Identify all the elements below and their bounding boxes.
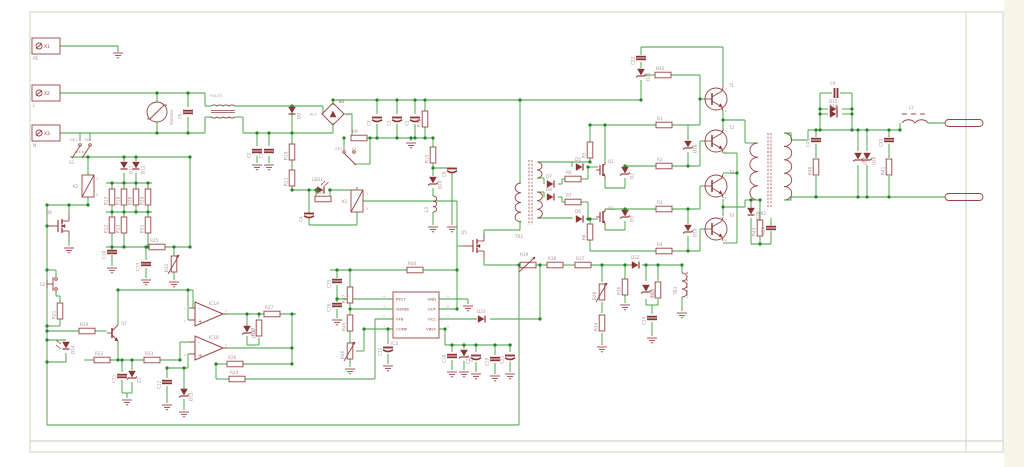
svg-text:R18: R18 (116, 196, 121, 205)
component-T4: CET4 (704, 213, 735, 243)
svg-text:R39: R39 (520, 252, 529, 257)
component-C10: C10 (102, 250, 118, 259)
svg-text:FOLTO: FOLTO (210, 93, 222, 98)
svg-text:OUT: OUT (428, 307, 437, 312)
svg-text:K2: K2 (73, 184, 79, 189)
svg-text:D18: D18 (693, 144, 698, 153)
svg-text:IC2: IC2 (391, 341, 398, 347)
svg-text:C15: C15 (327, 279, 332, 288)
component-R2: R2 (656, 157, 672, 169)
svg-text:R28: R28 (592, 291, 597, 300)
svg-text:1: 1 (366, 192, 368, 196)
svg-text:K1: K1 (352, 147, 357, 151)
component-X2: X2L (32, 85, 60, 108)
component-R22: R22 (94, 351, 110, 363)
svg-text:-: - (198, 340, 200, 346)
svg-text:6: 6 (447, 305, 449, 309)
svg-text:B1: B1 (339, 99, 345, 104)
component-R21: R21 (52, 303, 63, 319)
gnd-symbol (113, 53, 123, 58)
svg-text:R38: R38 (548, 256, 557, 261)
component-R12: R12 (104, 217, 115, 233)
svg-text:R8: R8 (582, 234, 587, 240)
svg-text:C21: C21 (500, 355, 505, 364)
svg-text:R23: R23 (145, 351, 154, 356)
component-R5: R5 (582, 142, 593, 158)
component-T2: CET2 (704, 125, 735, 155)
svg-text:C26: C26 (761, 226, 766, 235)
svg-text:U$6: U$6 (872, 156, 877, 165)
svg-text:C9: C9 (830, 81, 836, 86)
svg-text:VREF: VREF (426, 327, 436, 332)
component-L3: L3 (424, 196, 437, 212)
component-D24: D24 (56, 340, 76, 354)
component-R19: R19 (251, 320, 262, 336)
svg-text:R47: R47 (342, 294, 347, 303)
svg-text:COMP: COMP (396, 327, 408, 332)
svg-text:C17: C17 (378, 347, 383, 356)
svg-text:7: 7 (447, 315, 449, 319)
svg-text:N: N (33, 143, 36, 148)
svg-text:AC1: AC1 (346, 113, 353, 117)
component-RV1: Varistor (147, 102, 174, 125)
component-Q6: Q6 (46, 210, 69, 238)
component-D13: D13 (179, 389, 193, 401)
component-R26: R26 (227, 355, 243, 367)
gnd-symbol (471, 374, 481, 379)
component-D5: D5 (575, 157, 583, 171)
svg-text:TR1: TR1 (514, 234, 523, 239)
gnd-symbol (345, 369, 355, 374)
svg-text:4: 4 (383, 295, 385, 299)
component-C17: C17 (378, 347, 394, 356)
svg-text:R32: R32 (164, 263, 169, 272)
component-D6: D6 (575, 209, 583, 223)
svg-text:C3: C3 (367, 120, 372, 126)
svg-text:L3: L3 (424, 207, 429, 212)
svg-text:R21: R21 (52, 310, 57, 319)
svg-text:5: 5 (184, 353, 186, 357)
component-Q7: Q7 (107, 321, 127, 341)
gnd-symbol (122, 400, 132, 405)
svg-text:D13: D13 (189, 392, 194, 401)
svg-text:R15: R15 (425, 154, 430, 163)
component-IC2: IC2RTCT4GND5ISENSE3OUT6VFB2VCC7COMP1VREF… (383, 292, 449, 347)
component-OUT2 (945, 194, 983, 201)
gnd-symbol (447, 372, 457, 377)
component-R25: R25 (149, 238, 165, 250)
component-D22: D22 (631, 255, 640, 269)
components: X1PEX2LX3NVaristorC6FOLTOC7C5D9B1AC2AC1C… (32, 38, 983, 401)
svg-text:IC1B: IC1B (209, 335, 219, 341)
component-D18: D18 (683, 141, 697, 153)
svg-text:3: 3 (184, 319, 186, 323)
svg-text:R16: R16 (417, 118, 422, 127)
gnd-symbol (383, 366, 393, 371)
component-R14: R14 (315, 190, 331, 202)
component-R44: R44 (407, 261, 423, 273)
component-D19: D19 (683, 225, 697, 237)
component-R31: R31 (140, 217, 151, 233)
component-R6: R6 (565, 170, 581, 182)
svg-text:R40: R40 (808, 166, 813, 175)
component-R42: R42 (655, 66, 671, 78)
svg-text:CX1: CX1 (806, 138, 811, 147)
component-R10: R10 (284, 144, 295, 160)
gnd-symbol (252, 165, 262, 170)
svg-text:7: 7 (225, 343, 227, 347)
svg-text:C8: C8 (442, 171, 447, 177)
svg-text:R6: R6 (566, 170, 572, 175)
gnd-symbol (647, 338, 657, 343)
svg-text:R17: R17 (104, 196, 109, 205)
svg-text:C19: C19 (485, 357, 490, 366)
svg-text:X2: X2 (44, 91, 50, 97)
component-R32: R32 (164, 255, 179, 274)
svg-text:+: + (198, 353, 202, 359)
component-R17: R17 (104, 189, 115, 205)
svg-text:GND: GND (427, 297, 436, 302)
component-IC1A: -+231IC1A (184, 301, 228, 326)
svg-text:R13: R13 (116, 224, 121, 233)
svg-text:C18: C18 (442, 354, 447, 363)
svg-text:R2: R2 (657, 157, 663, 162)
gnd-symbol (677, 313, 687, 318)
wires (47, 46, 945, 425)
gnd-symbol (162, 405, 172, 410)
svg-text:R37: R37 (576, 256, 585, 261)
component-R27: R27 (264, 305, 280, 317)
svg-text:D6: D6 (575, 209, 581, 214)
svg-text:R43: R43 (752, 227, 757, 236)
svg-text:R27: R27 (265, 305, 274, 310)
svg-text:D10: D10 (438, 180, 443, 189)
svg-text:2: 2 (184, 307, 186, 311)
svg-text:R11: R11 (284, 177, 289, 186)
svg-text:D23: D23 (477, 309, 486, 314)
gnd-symbol (169, 282, 179, 287)
svg-text:IC1A: IC1A (209, 301, 219, 307)
component-C22: C22 (631, 56, 647, 65)
svg-text:C11: C11 (112, 374, 117, 383)
svg-text:Z1: Z1 (137, 377, 142, 383)
svg-text:5: 5 (447, 295, 449, 299)
component-R47: R47 (342, 287, 353, 303)
gnd-symbol (459, 372, 469, 377)
svg-text:ISENSE: ISENSE (396, 307, 410, 312)
svg-text:C5: C5 (259, 152, 264, 158)
svg-text:R12: R12 (104, 224, 109, 233)
svg-text:C1: C1 (405, 120, 410, 126)
component-L1: FOLTO (210, 93, 235, 118)
component-D21: D21 (636, 69, 650, 81)
component-R38: R38 (547, 256, 563, 268)
svg-text:R9: R9 (352, 129, 358, 134)
component-T1: CET1 (704, 83, 735, 113)
component-R39: R39 (519, 252, 536, 272)
svg-text:C22: C22 (631, 56, 636, 65)
svg-text:E: E (725, 151, 727, 155)
svg-text:D12: D12 (141, 165, 146, 174)
svg-text:AC2: AC2 (310, 113, 317, 117)
svg-text:D7: D7 (546, 174, 552, 179)
svg-text:T1: T1 (728, 83, 735, 88)
component-S2: S2 (40, 277, 57, 291)
component-R41: R41 (881, 159, 892, 175)
svg-text:Varistor: Varistor (169, 109, 174, 125)
svg-text:D3: D3 (630, 216, 635, 222)
gnd-symbol (64, 248, 74, 253)
svg-text:R44: R44 (408, 261, 417, 266)
svg-text:TR3: TR3 (673, 287, 678, 296)
component-R46: R46 (340, 342, 355, 361)
svg-text:R42: R42 (656, 66, 665, 71)
component-R33: R33 (650, 282, 661, 298)
component-C11: C11 (112, 374, 128, 383)
svg-text:2: 2 (366, 207, 368, 211)
svg-text:C16: C16 (327, 303, 332, 312)
component-C8: C8 (442, 168, 458, 177)
component-C16: C16 (327, 303, 343, 312)
svg-text:Q2: Q2 (608, 206, 614, 211)
svg-text:C4: C4 (299, 216, 304, 222)
component-Z1: Z1 (127, 371, 141, 383)
svg-text:6: 6 (184, 341, 186, 345)
component-C3: C3 (367, 117, 383, 126)
component-C6: C6 (178, 110, 194, 119)
component-C4: C4 (299, 213, 315, 222)
svg-text:Q7: Q7 (121, 321, 127, 326)
svg-text:R34: R34 (594, 322, 599, 331)
component-R16: R16 (417, 111, 428, 127)
svg-text:L: L (33, 103, 36, 108)
svg-text:RTCT: RTCT (396, 297, 406, 302)
svg-text:C: C (725, 174, 727, 178)
svg-text:R7: R7 (566, 193, 572, 198)
component-R7: R7 (565, 193, 581, 205)
component-C12: C12 (157, 380, 173, 389)
component-R9: R9 (351, 129, 367, 141)
component-C14: C14 (642, 316, 658, 325)
svg-text:Q1: Q1 (608, 159, 614, 164)
svg-text:CX2: CX2 (879, 138, 884, 147)
svg-text:R5: R5 (582, 152, 587, 158)
svg-text:R26: R26 (228, 355, 237, 360)
component-B1: B1AC2AC1 (310, 99, 353, 125)
component-R18: R18 (116, 189, 127, 205)
component-C9: C9 (830, 81, 838, 98)
component-C15: C15 (327, 279, 343, 288)
svg-text:LED1: LED1 (312, 177, 323, 182)
svg-text:K1: K1 (342, 199, 348, 204)
component-R40: R40 (808, 159, 819, 175)
svg-text:VFB: VFB (396, 317, 404, 322)
gnd-symbol (490, 376, 500, 381)
component-R8: R8 (582, 224, 593, 240)
component-CX1: CX1 (806, 138, 822, 147)
svg-text:C20: C20 (466, 355, 471, 364)
component-C19: C19 (485, 357, 501, 366)
svg-text:C: C (725, 217, 727, 221)
svg-text:R19: R19 (251, 327, 256, 336)
gnd-symbol (620, 305, 630, 310)
component-D3: D3 (620, 210, 634, 222)
svg-text:PE: PE (33, 56, 39, 61)
gnd-symbol (406, 143, 416, 148)
gnd-symbol (463, 306, 473, 311)
component-D16: D16 (829, 104, 838, 118)
component-IC1B: -+657IC1B (184, 335, 228, 360)
svg-text:3: 3 (383, 305, 385, 309)
svg-text:R3: R3 (657, 200, 663, 205)
component-Q5: Q5 (461, 230, 484, 258)
component-CX2: CX2 (879, 138, 895, 147)
svg-text:D2: D2 (630, 173, 635, 179)
svg-text:G$2: G$2 (335, 147, 342, 151)
gnd-symbol (447, 227, 457, 232)
gnd-symbol (597, 347, 607, 352)
component-X3: X3N (32, 125, 60, 148)
svg-text:R20: R20 (80, 322, 89, 327)
svg-text:D5: D5 (575, 157, 581, 162)
svg-text:C7: C7 (247, 152, 252, 158)
component-D23: D23 (477, 309, 486, 323)
component-R34: R34 (594, 315, 605, 331)
component-R30: R30 (128, 189, 139, 205)
svg-text:R46: R46 (340, 350, 345, 359)
component-TR1: TR1 (514, 160, 542, 239)
svg-text:R10: R10 (284, 151, 289, 160)
schematic-page: X1PEX2LX3NVaristorC6FOLTOC7C5D9B1AC2AC1C… (0, 0, 1024, 467)
svg-text:E: E (725, 109, 727, 113)
svg-text:D24: D24 (71, 345, 76, 354)
component-X1: X1PE (32, 38, 60, 61)
svg-text:D21: D21 (646, 72, 651, 81)
svg-text:D22: D22 (631, 255, 640, 260)
svg-text:G$1: G$1 (70, 138, 77, 142)
svg-text:Q6: Q6 (46, 210, 52, 215)
svg-text:R29: R29 (140, 196, 145, 205)
component-R45: R45 (342, 315, 353, 331)
component-D7: D7 (546, 174, 554, 188)
svg-text:D16: D16 (829, 104, 838, 109)
component-R15: R15 (425, 147, 436, 163)
svg-text:T4: T4 (728, 213, 735, 218)
svg-text:Q5: Q5 (461, 230, 467, 235)
component-R4: R4 (656, 242, 672, 254)
svg-text:D8: D8 (546, 187, 552, 192)
svg-text:C2: C2 (387, 120, 392, 126)
component-C13: C13 (136, 262, 152, 271)
gnd-symbol (505, 374, 515, 379)
svg-text:-: - (198, 306, 200, 312)
gnd-symbol (428, 227, 438, 232)
svg-text:T3: T3 (728, 170, 735, 175)
svg-text:G$2: G$2 (84, 138, 91, 142)
svg-text:C12: C12 (157, 380, 162, 389)
svg-text:R1: R1 (657, 116, 663, 121)
component-R29: R29 (140, 189, 151, 205)
svg-text:S1: S1 (69, 160, 75, 165)
component-R37: R37 (575, 256, 591, 268)
component-R11: R11 (284, 170, 295, 186)
component-D9: D9 (289, 107, 302, 119)
component-C21: C21 (500, 355, 516, 364)
svg-text:R24: R24 (230, 370, 239, 375)
component-OUT1 (945, 120, 983, 127)
svg-text:R45: R45 (342, 322, 347, 331)
component-C2: C2 (387, 117, 403, 126)
svg-text:C: C (725, 129, 727, 133)
svg-text:8: 8 (447, 325, 449, 329)
component-R1: R1 (656, 116, 672, 128)
svg-text:C: C (725, 87, 727, 91)
component-L2: L2 (902, 105, 928, 123)
schematic-canvas: X1PEX2LX3NVaristorC6FOLTOC7C5D9B1AC2AC1C… (0, 0, 1024, 467)
svg-text:R36: R36 (617, 286, 622, 295)
component-R36: R36 (617, 279, 628, 295)
component-TR3: TR3 (673, 272, 687, 298)
svg-text:T2: T2 (728, 125, 735, 130)
svg-text:R33: R33 (650, 289, 655, 298)
svg-text:D20: D20 (756, 211, 761, 220)
svg-text:D9: D9 (297, 113, 302, 119)
svg-text:VCC: VCC (428, 317, 436, 322)
component-R28: R28 (592, 283, 607, 302)
svg-text:D19: D19 (693, 228, 698, 237)
gnd-symbol (107, 268, 117, 273)
svg-text:C10: C10 (102, 250, 107, 259)
svg-text:S2: S2 (40, 282, 46, 287)
component-TR2: TR2 (750, 133, 792, 216)
gnd-symbol (332, 320, 342, 325)
svg-text:1: 1 (96, 177, 98, 181)
svg-text:2: 2 (383, 315, 385, 319)
svg-text:C14: C14 (642, 316, 647, 325)
svg-text:C6: C6 (178, 113, 183, 119)
svg-text:1: 1 (383, 325, 385, 329)
component-D20: D20 (748, 208, 761, 220)
svg-text:R41: R41 (881, 166, 886, 175)
component-D2: D2 (620, 167, 634, 179)
svg-text:X3: X3 (44, 131, 50, 137)
component-D8: D8 (546, 187, 554, 201)
component-D11: D11 (121, 162, 134, 174)
svg-text:R31: R31 (140, 224, 145, 233)
svg-text:L2: L2 (909, 105, 914, 110)
gnd-symbol (141, 280, 151, 285)
component-T3: CET3 (704, 170, 735, 200)
component-D12: D12 (133, 162, 146, 174)
svg-text:2: 2 (96, 193, 98, 197)
svg-text:E: E (725, 239, 727, 243)
svg-text:1: 1 (225, 309, 227, 313)
svg-text:R22: R22 (95, 351, 104, 356)
gnd-symbol (179, 412, 189, 417)
component-R24: R24 (229, 370, 245, 382)
component-C18: C18 (442, 354, 458, 363)
component-D10: D10 (428, 177, 442, 189)
component-C26: C26 (761, 226, 777, 235)
svg-text:X1: X1 (44, 44, 50, 50)
component-K1A (343, 151, 356, 165)
component-R23: R23 (144, 351, 160, 363)
component-R20: R20 (79, 322, 95, 334)
component-R3: R3 (656, 200, 672, 212)
component-R13: R13 (116, 217, 127, 233)
svg-text:E: E (725, 196, 727, 200)
svg-text:R4: R4 (657, 242, 663, 247)
